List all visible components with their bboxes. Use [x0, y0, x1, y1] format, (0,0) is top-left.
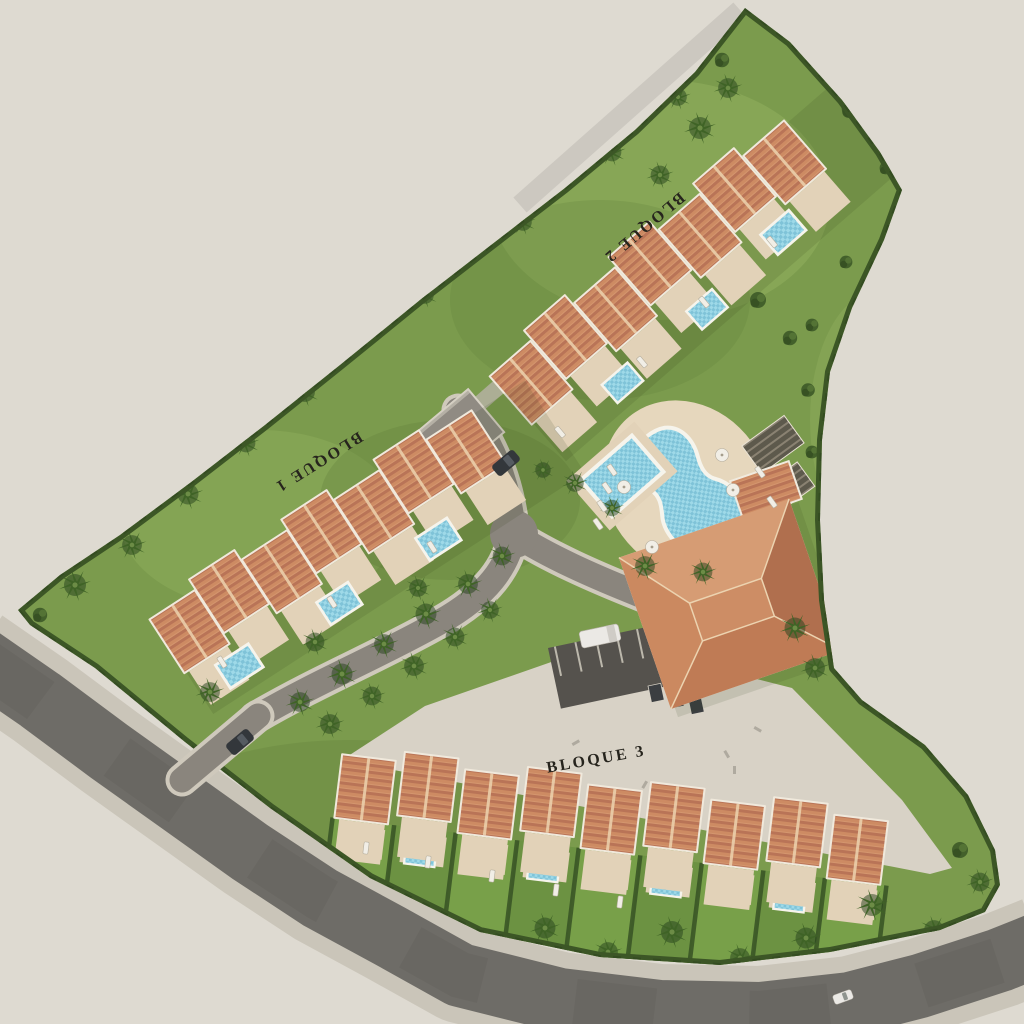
umbrella-icon [716, 449, 729, 462]
bush-icon [806, 446, 819, 459]
sun-lounger-icon [425, 856, 431, 869]
sun-lounger-icon [553, 884, 559, 897]
bush-icon [750, 292, 766, 308]
bush-icon [840, 256, 853, 269]
bush-icon [33, 608, 47, 622]
umbrella-icon [646, 541, 659, 554]
bush-icon [806, 319, 819, 332]
bush-icon [801, 383, 815, 397]
bush-icon [952, 842, 968, 858]
umbrella-icon [618, 481, 631, 494]
sun-lounger-icon [489, 870, 495, 883]
site-plan-image: BLOQUE 2 BLOQUE 1 BLOQUE 3 [0, 0, 1024, 1024]
bush-icon [715, 53, 729, 67]
sun-lounger-icon [363, 842, 369, 855]
plaza-mark [733, 766, 736, 774]
sun-lounger-icon [617, 896, 623, 909]
umbrella-icon [727, 484, 740, 497]
site-plan-render: BLOQUE 2 BLOQUE 1 BLOQUE 3 [0, 0, 1024, 1024]
bush-icon [783, 331, 797, 345]
